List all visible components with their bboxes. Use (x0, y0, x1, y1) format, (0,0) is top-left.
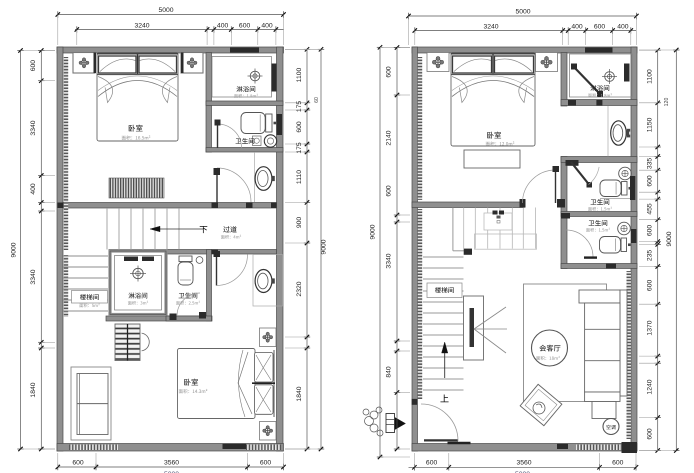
svg-text:9000: 9000 (370, 224, 377, 239)
svg-text:5000: 5000 (158, 7, 173, 14)
svg-text:600: 600 (239, 22, 251, 29)
svg-text:600: 600 (30, 60, 37, 72)
svg-text:9000: 9000 (666, 231, 673, 246)
svg-text:3240: 3240 (134, 22, 149, 29)
svg-text:235: 235 (647, 250, 654, 262)
svg-text:1240: 1240 (647, 379, 654, 394)
svg-text:1840: 1840 (30, 382, 37, 397)
svg-text:175: 175 (296, 101, 303, 113)
svg-text:335: 335 (647, 158, 654, 170)
svg-text:900: 900 (296, 217, 303, 229)
svg-text:120: 120 (664, 98, 670, 107)
svg-text:60: 60 (314, 97, 320, 103)
svg-text:600: 600 (426, 460, 438, 467)
svg-text:455: 455 (647, 203, 654, 215)
svg-text:1150: 1150 (647, 117, 654, 132)
svg-text:3340: 3340 (30, 269, 37, 284)
svg-text:400: 400 (571, 23, 583, 30)
svg-text:600: 600 (647, 428, 654, 440)
svg-text:600: 600 (260, 459, 272, 466)
svg-text:400: 400 (30, 183, 37, 195)
svg-text:3560: 3560 (516, 460, 531, 467)
svg-text:600: 600 (612, 460, 624, 467)
svg-text:400: 400 (617, 23, 629, 30)
svg-text:1100: 1100 (296, 67, 303, 82)
svg-text:400: 400 (261, 22, 273, 29)
svg-text:9000: 9000 (11, 242, 18, 257)
svg-text:1110: 1110 (296, 170, 303, 184)
svg-text:400: 400 (217, 22, 229, 29)
svg-text:3240: 3240 (483, 23, 498, 30)
svg-text:3340: 3340 (30, 120, 37, 135)
svg-text:600: 600 (647, 175, 654, 187)
svg-text:175: 175 (296, 142, 303, 154)
svg-text:1840: 1840 (296, 386, 303, 401)
svg-text:600: 600 (296, 121, 303, 133)
svg-text:600: 600 (647, 225, 654, 237)
svg-text:840: 840 (386, 366, 393, 378)
svg-text:1100: 1100 (647, 69, 654, 84)
svg-text:600: 600 (647, 280, 654, 292)
svg-text:1370: 1370 (647, 320, 654, 335)
svg-text:2140: 2140 (386, 130, 393, 145)
svg-text:600: 600 (386, 185, 393, 197)
svg-text:3560: 3560 (164, 459, 179, 466)
svg-text:9000: 9000 (321, 239, 328, 254)
svg-text:600: 600 (386, 66, 393, 78)
svg-text:3340: 3340 (386, 253, 393, 268)
svg-text:2320: 2320 (296, 281, 303, 296)
svg-text:5000: 5000 (515, 9, 530, 16)
svg-text:600: 600 (72, 459, 84, 466)
svg-text:600: 600 (594, 23, 606, 30)
